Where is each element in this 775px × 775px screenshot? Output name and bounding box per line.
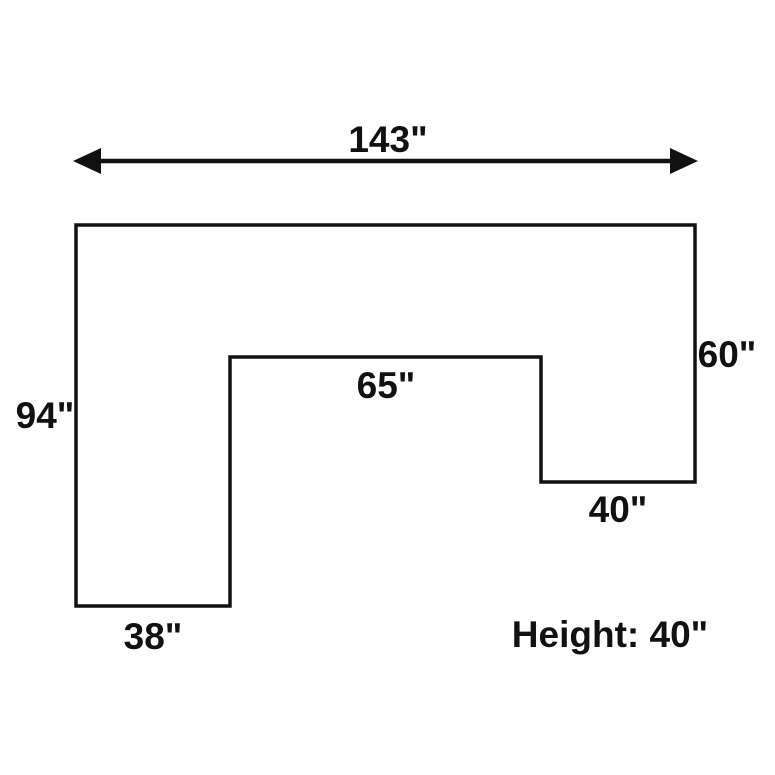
dimension-diagram-canvas: 143" 94" 65" 60" 40" 38" Height: 40" bbox=[0, 0, 775, 775]
label-right-bottom-width: 40" bbox=[589, 489, 648, 530]
arrowhead-right-icon bbox=[670, 148, 698, 174]
label-left-height: 94" bbox=[16, 395, 75, 436]
label-notch-width: 65" bbox=[357, 365, 416, 406]
arrowhead-left-icon bbox=[73, 148, 101, 174]
label-right-height: 60" bbox=[698, 334, 757, 375]
shape-outline bbox=[76, 225, 695, 606]
label-height-note: Height: 40" bbox=[512, 614, 708, 655]
diagram-page: 143" 94" 65" 60" 40" 38" Height: 40" bbox=[0, 0, 775, 775]
label-total-width: 143" bbox=[348, 119, 427, 160]
label-left-bottom-width: 38" bbox=[124, 616, 183, 657]
